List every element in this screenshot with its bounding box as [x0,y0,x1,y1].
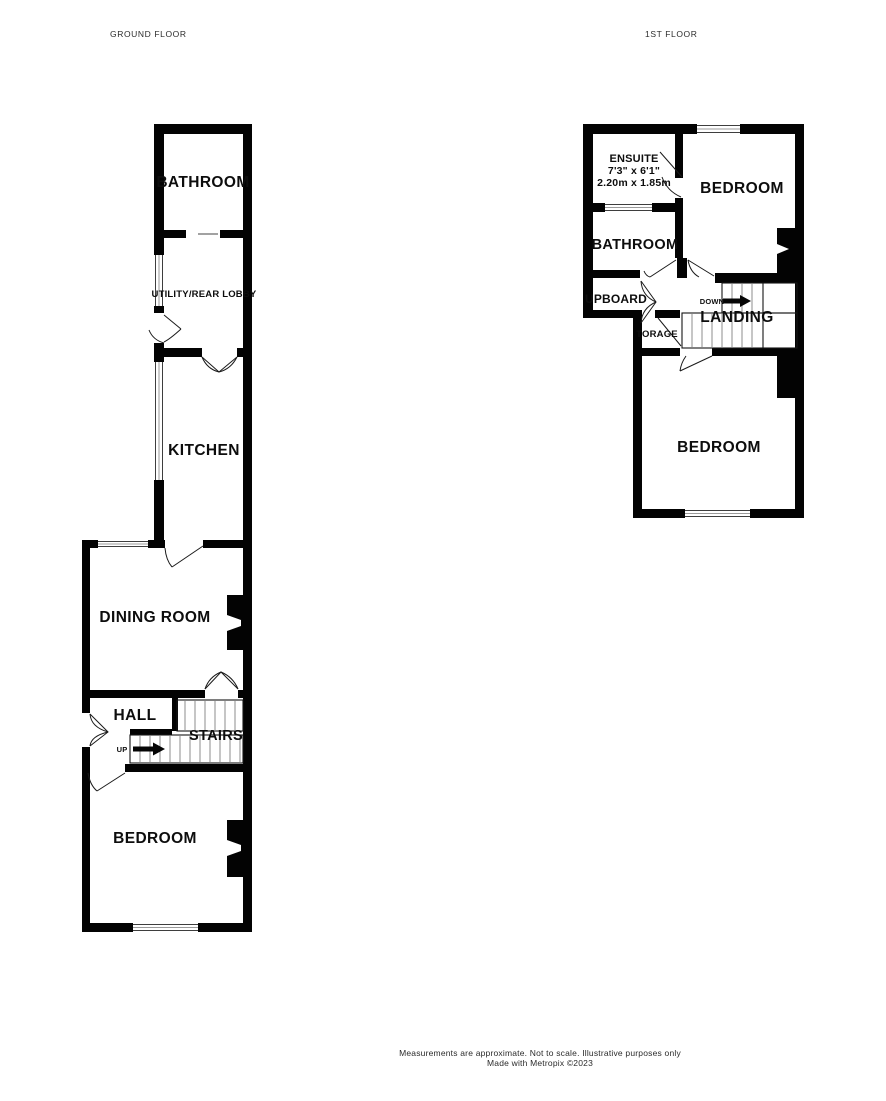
footer-credit: Made with Metropix ©2023 [487,1058,593,1068]
ground-floor-title: GROUND FLOOR [110,29,187,39]
gf-kitchen-label: KITCHEN [168,442,240,459]
plan-footer: Measurements are approximate. Not to sca… [399,1048,681,1068]
gf-up-label: UP [117,745,128,754]
ff-landing-label: LANDING [700,309,773,326]
ff-bedroom-front-label: BEDROOM [700,180,784,197]
first-floor-labels: ENSUITE 7'3" x 6'1" 2.20m x 1.85m BEDROO… [585,153,784,456]
floorplan-page: BATHROOM UTILITY/REAR LOBBY KITCHEN DINI… [0,0,886,1101]
ground-floor-labels: BATHROOM UTILITY/REAR LOBBY KITCHEN DINI… [99,174,257,847]
ff-bathroom-label: BATHROOM [592,237,679,253]
gf-utility-label: UTILITY/REAR LOBBY [152,289,257,300]
first-floor-plan: ENSUITE 7'3" x 6'1" 2.20m x 1.85m BEDROO… [583,124,804,518]
gf-bedroom-label: BEDROOM [113,830,197,847]
gf-dining-room-label: DINING ROOM [99,609,210,626]
floorplan-canvas: BATHROOM UTILITY/REAR LOBBY KITCHEN DINI… [0,0,886,1101]
ground-floor-walls [82,124,252,932]
ground-floor-plan: BATHROOM UTILITY/REAR LOBBY KITCHEN DINI… [82,124,257,932]
ff-ensuite-size-metric: 2.20m x 1.85m [597,177,671,189]
ff-storage-label: TORAGE [636,329,678,340]
ff-down-label: DOWN [700,297,725,306]
first-floor-title: 1ST FLOOR [645,29,697,39]
ff-ensuite-size-imperial: 7'3" x 6'1" [608,165,660,177]
plan-headers: GROUND FLOOR 1ST FLOOR [110,29,697,39]
gf-hall-label: HALL [114,707,157,724]
footer-disclaimer: Measurements are approximate. Not to sca… [399,1048,681,1058]
gf-bathroom-label: BATHROOM [156,174,249,191]
ff-bedroom-rear-label: BEDROOM [677,439,761,456]
gf-stairs-label: STAIRS [189,728,243,744]
down-arrow-icon [723,295,751,307]
ff-ensuite-label: ENSUITE [609,153,658,165]
ff-cupboard-label: UPBOARD [585,292,647,306]
